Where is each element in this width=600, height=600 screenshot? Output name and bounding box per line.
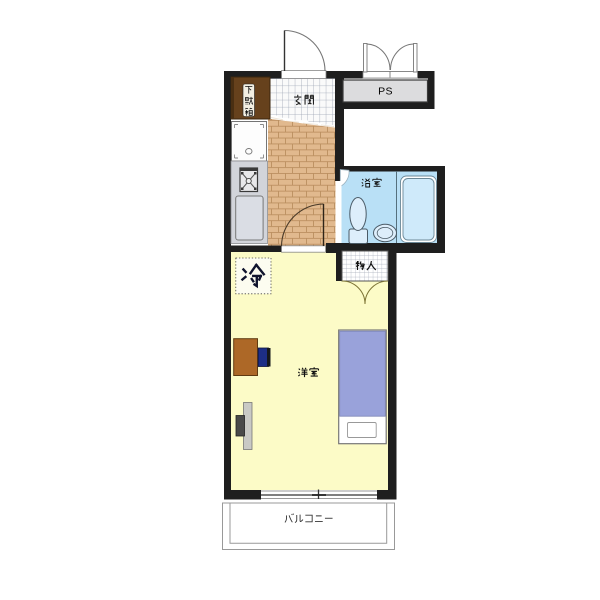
svg-text:PS: PS xyxy=(378,86,393,98)
